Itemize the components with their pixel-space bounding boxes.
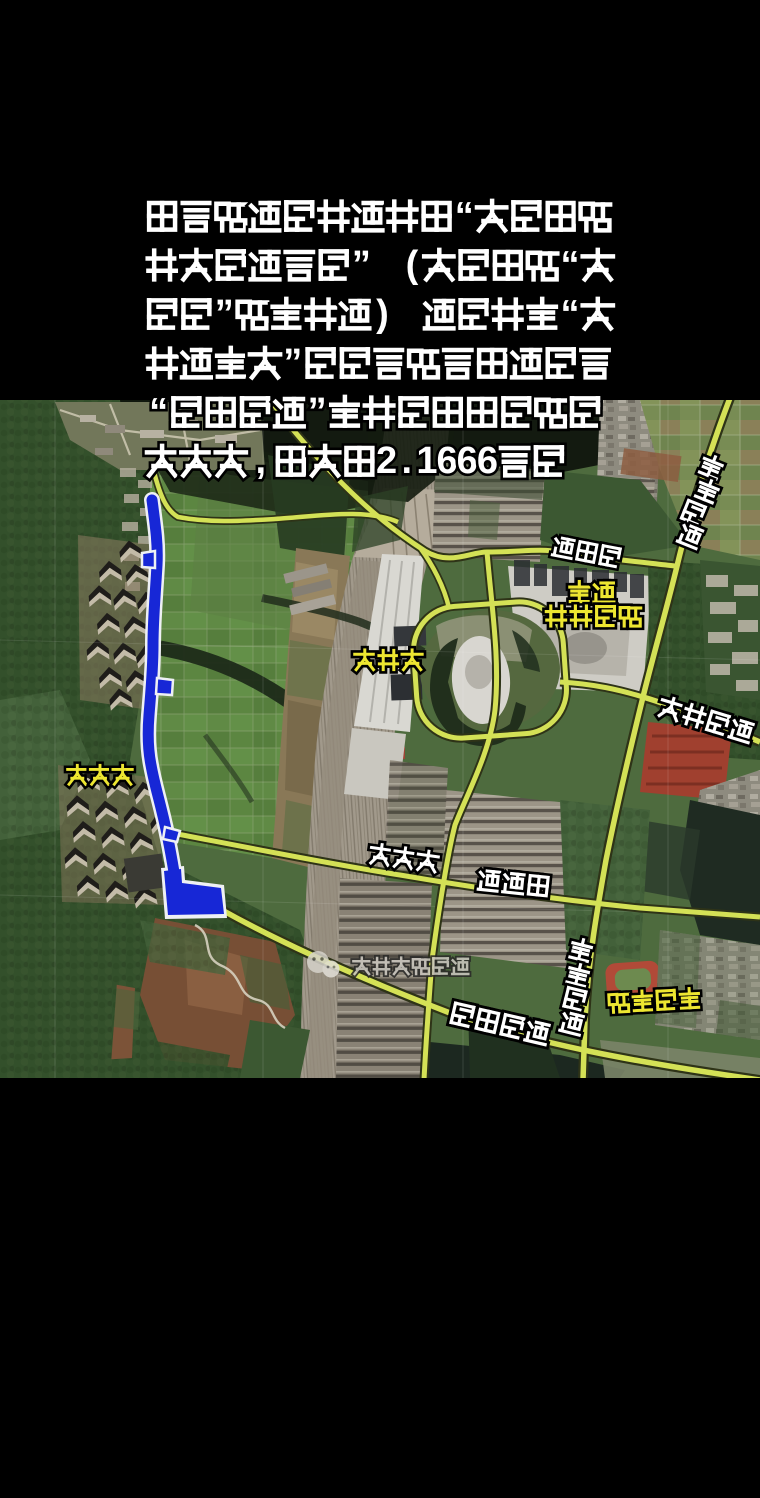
svg-text:,: , <box>256 440 267 482</box>
svg-text:6: 6 <box>457 440 478 482</box>
svg-text:“: “ <box>149 391 168 433</box>
svg-text:6: 6 <box>477 440 498 482</box>
svg-text:”: ” <box>283 342 302 384</box>
svg-text:): ) <box>376 293 389 335</box>
svg-text:“: “ <box>455 195 474 237</box>
svg-text:6: 6 <box>437 440 458 482</box>
svg-text:.: . <box>402 440 413 482</box>
svg-text:“: “ <box>561 244 580 286</box>
svg-text:”: ” <box>215 293 234 335</box>
svg-text:”: ” <box>352 244 371 286</box>
svg-text:1: 1 <box>416 440 437 482</box>
svg-text:“: “ <box>561 293 580 335</box>
svg-text:(: ( <box>406 244 419 286</box>
svg-text:2: 2 <box>376 440 397 482</box>
svg-text:”: ” <box>308 391 327 433</box>
